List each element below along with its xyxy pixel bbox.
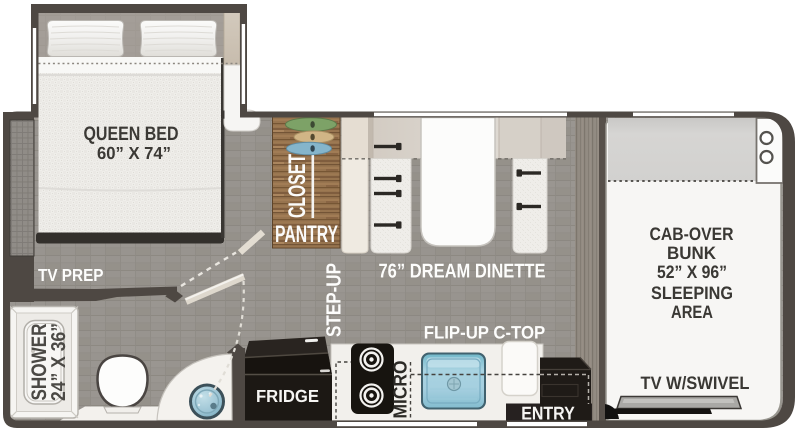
svg-text:FLIP-UP C-TOP: FLIP-UP C-TOP bbox=[424, 323, 546, 343]
svg-text:BUNK: BUNK bbox=[667, 243, 716, 263]
svg-text:76” DREAM DINETTE: 76” DREAM DINETTE bbox=[379, 261, 546, 283]
svg-text:TV PREP: TV PREP bbox=[38, 265, 104, 285]
svg-text:MICRO: MICRO bbox=[391, 361, 412, 419]
svg-text:CAB-OVER: CAB-OVER bbox=[650, 224, 734, 244]
svg-text:PANTRY: PANTRY bbox=[275, 221, 338, 248]
svg-text:TV W/SWIVEL: TV W/SWIVEL bbox=[641, 373, 750, 393]
svg-text:ENTRY: ENTRY bbox=[521, 403, 575, 424]
svg-text:FRIDGE: FRIDGE bbox=[256, 386, 319, 406]
svg-text:60” X 74”: 60” X 74” bbox=[97, 143, 171, 163]
svg-text:CLOSET: CLOSET bbox=[284, 154, 311, 218]
svg-text:24” X 36”: 24” X 36” bbox=[48, 323, 70, 401]
svg-text:STEP-UP: STEP-UP bbox=[323, 263, 346, 337]
svg-text:52” X 96”: 52” X 96” bbox=[657, 262, 727, 282]
svg-text:QUEEN BED: QUEEN BED bbox=[84, 123, 179, 145]
svg-text:AREA: AREA bbox=[671, 302, 713, 322]
svg-text:SLEEPING: SLEEPING bbox=[651, 283, 733, 303]
